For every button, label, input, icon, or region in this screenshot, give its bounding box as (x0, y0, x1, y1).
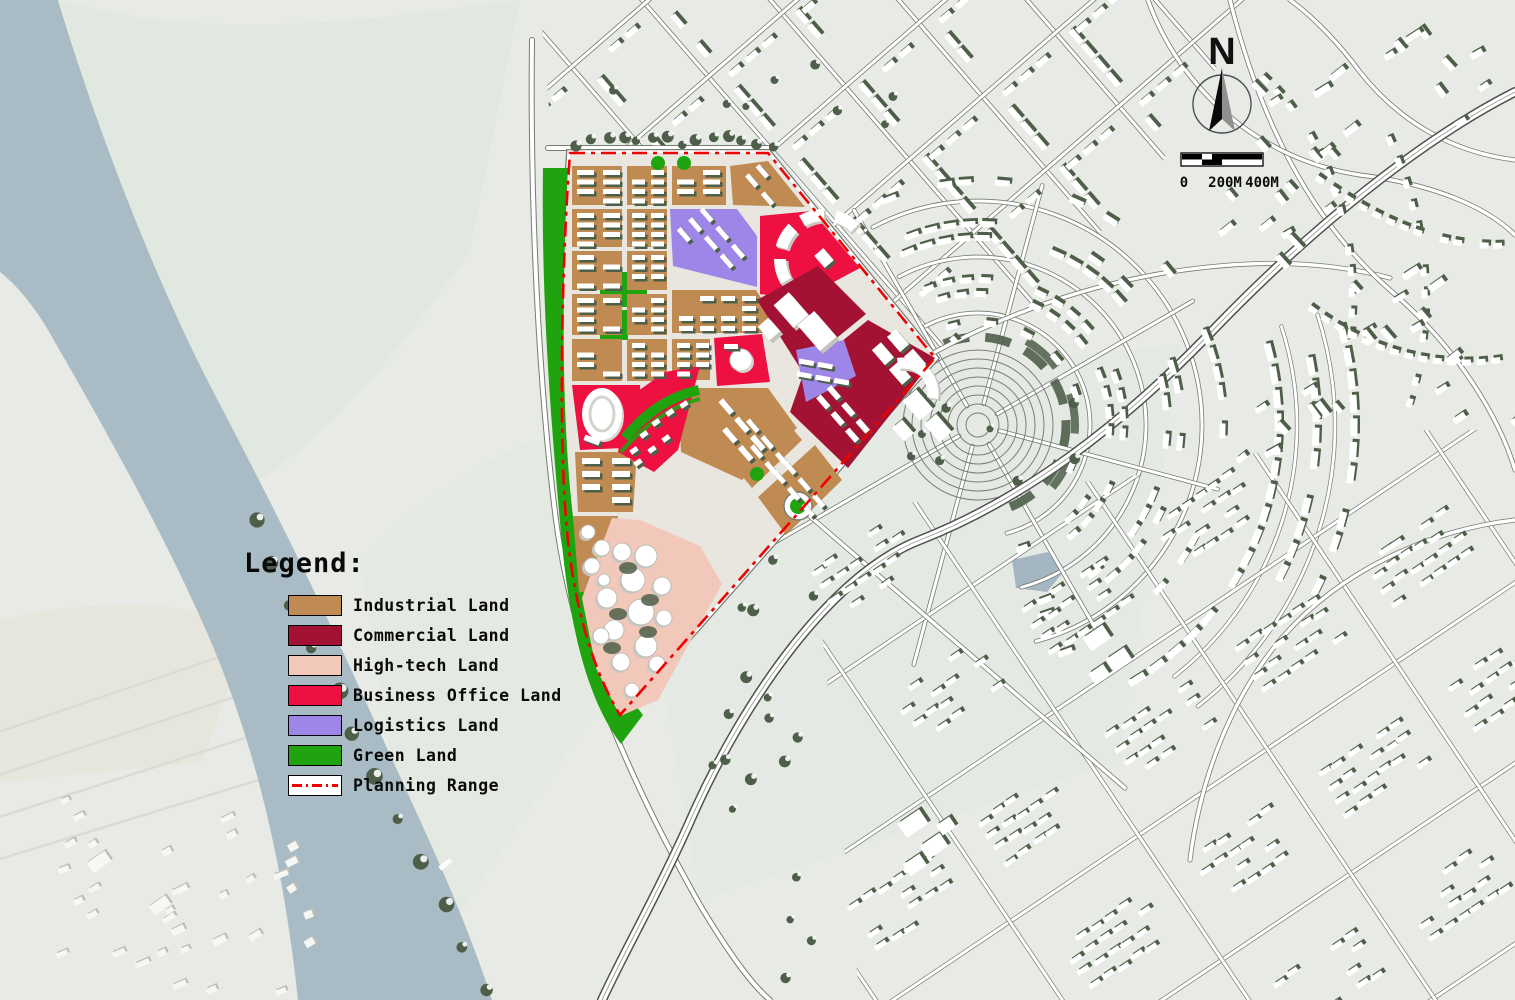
scale-label-0: 0 (1180, 175, 1188, 191)
legend-item-label: Planning Range (353, 776, 499, 795)
legend-item-ht: High-tech Land (288, 655, 562, 676)
legend-swatch-log (288, 715, 342, 736)
compass-north-label: N (1208, 31, 1235, 73)
scale-label-200m: 200M (1208, 175, 1242, 191)
legend-item-label: Business Office Land (353, 686, 562, 705)
legend-item-ind: Industrial Land (288, 595, 562, 616)
legend-title: Legend: (244, 548, 562, 579)
green-node (651, 156, 665, 170)
legend-item-label: Commercial Land (353, 626, 510, 645)
legend-items: Industrial LandCommercial LandHigh-tech … (288, 595, 562, 796)
legend-item-label: High-tech Land (353, 656, 499, 675)
legend-swatch-grn (288, 745, 342, 766)
legend-item-plan: Planning Range (288, 775, 562, 796)
legend-item-bus: Business Office Land (288, 685, 562, 706)
legend-item-label: Industrial Land (353, 596, 510, 615)
planning-map-canvas: N 0 200M 400M (0, 0, 1515, 1000)
planning-map-page: N 0 200M 400M Legend: Industrial LandCom… (0, 0, 1515, 1000)
legend-swatch-plan (288, 775, 342, 796)
scale-label-400m: 400M (1245, 175, 1279, 191)
legend-swatch-bus (288, 685, 342, 706)
legend-item-log: Logistics Land (288, 715, 562, 736)
legend-item-label: Green Land (353, 746, 457, 765)
legend-item-com: Commercial Land (288, 625, 562, 646)
legend-item-label: Logistics Land (353, 716, 499, 735)
legend-swatch-ind (288, 595, 342, 616)
legend-swatch-com (288, 625, 342, 646)
green-node (677, 156, 691, 170)
legend-swatch-ht (288, 655, 342, 676)
green-node (750, 467, 764, 481)
legend: Legend: Industrial LandCommercial LandHi… (244, 548, 562, 805)
legend-item-grn: Green Land (288, 745, 562, 766)
